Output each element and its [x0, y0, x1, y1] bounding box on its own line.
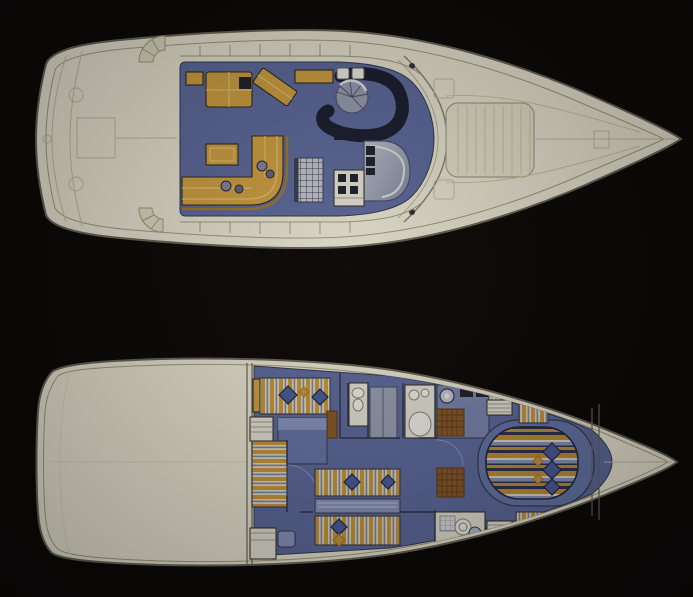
berth-headboard [253, 379, 260, 412]
port-head-basin-inner [459, 523, 467, 531]
locker-starboard [487, 400, 512, 415]
fwd-head-faucet [421, 389, 429, 397]
decor-cushion-1 [221, 181, 231, 191]
forepeak [592, 404, 672, 520]
galley-wall [294, 158, 298, 202]
port-head-cabinet-1 [443, 546, 451, 552]
upper-deck-plan [36, 30, 681, 248]
instrument-3 [366, 168, 375, 175]
shower-grate [440, 516, 455, 531]
locker-starboard-base [487, 400, 512, 415]
fwd-head-sink [409, 390, 419, 400]
aft-head-toilet [353, 399, 363, 411]
twin-cabin [315, 469, 400, 546]
companionway-step-1 [338, 174, 346, 182]
companionway-step-3 [338, 186, 346, 194]
coffee-table-top [206, 144, 238, 165]
instrument-1 [366, 146, 375, 155]
entry-cabinet [186, 72, 203, 85]
dresser-top [437, 468, 464, 497]
lower-deck-plan [37, 358, 678, 565]
aft-head-sink [352, 388, 364, 398]
yacht-deck-plans: Motor yacht general-arrangement drawing:… [0, 0, 693, 597]
decor-cushion-2 [235, 185, 243, 193]
galley-cabinet-top [437, 409, 464, 436]
shelf-base [250, 417, 273, 441]
helm-seat-2 [352, 68, 364, 79]
wardrobe [370, 387, 397, 438]
sideboard [295, 70, 333, 83]
dresser [437, 468, 464, 497]
port-head-cabinet-2 [456, 548, 465, 554]
twin-berth-aft [315, 516, 400, 545]
nightstand-top [315, 499, 400, 513]
forward-head-starboard [405, 385, 435, 438]
sectional-sofa [206, 72, 252, 107]
nightstand [315, 499, 400, 513]
port-settee [252, 441, 287, 507]
sofa-side-table [239, 77, 251, 89]
companionway-step-4 [350, 186, 358, 194]
fwd-head-tub [409, 412, 431, 436]
wardrobe-body [370, 387, 397, 438]
side-table [278, 531, 295, 547]
spiral-staircase [336, 81, 368, 113]
helm-console [364, 141, 410, 201]
decor-cushion-4 [266, 170, 274, 178]
decor-cushion-3 [257, 161, 267, 171]
tall-cabinet [327, 411, 337, 438]
stove-burner-inner [445, 394, 450, 399]
companionway-step-2 [350, 174, 358, 182]
page-background: Motor yacht general-arrangement drawing:… [0, 0, 693, 597]
instrument-2 [366, 157, 375, 166]
companionway-panel [334, 170, 364, 206]
coffee-table [206, 144, 238, 165]
island-berth [486, 427, 578, 499]
galley-cabinet [437, 409, 464, 436]
lower-interior [250, 366, 612, 559]
galley-floor-tiles [298, 158, 323, 202]
shelf-unit [250, 417, 273, 441]
aft-head-door [250, 528, 276, 559]
aft-head [349, 383, 368, 426]
helm-seat-1 [337, 68, 349, 79]
aft-sofa-backrest [278, 418, 327, 430]
